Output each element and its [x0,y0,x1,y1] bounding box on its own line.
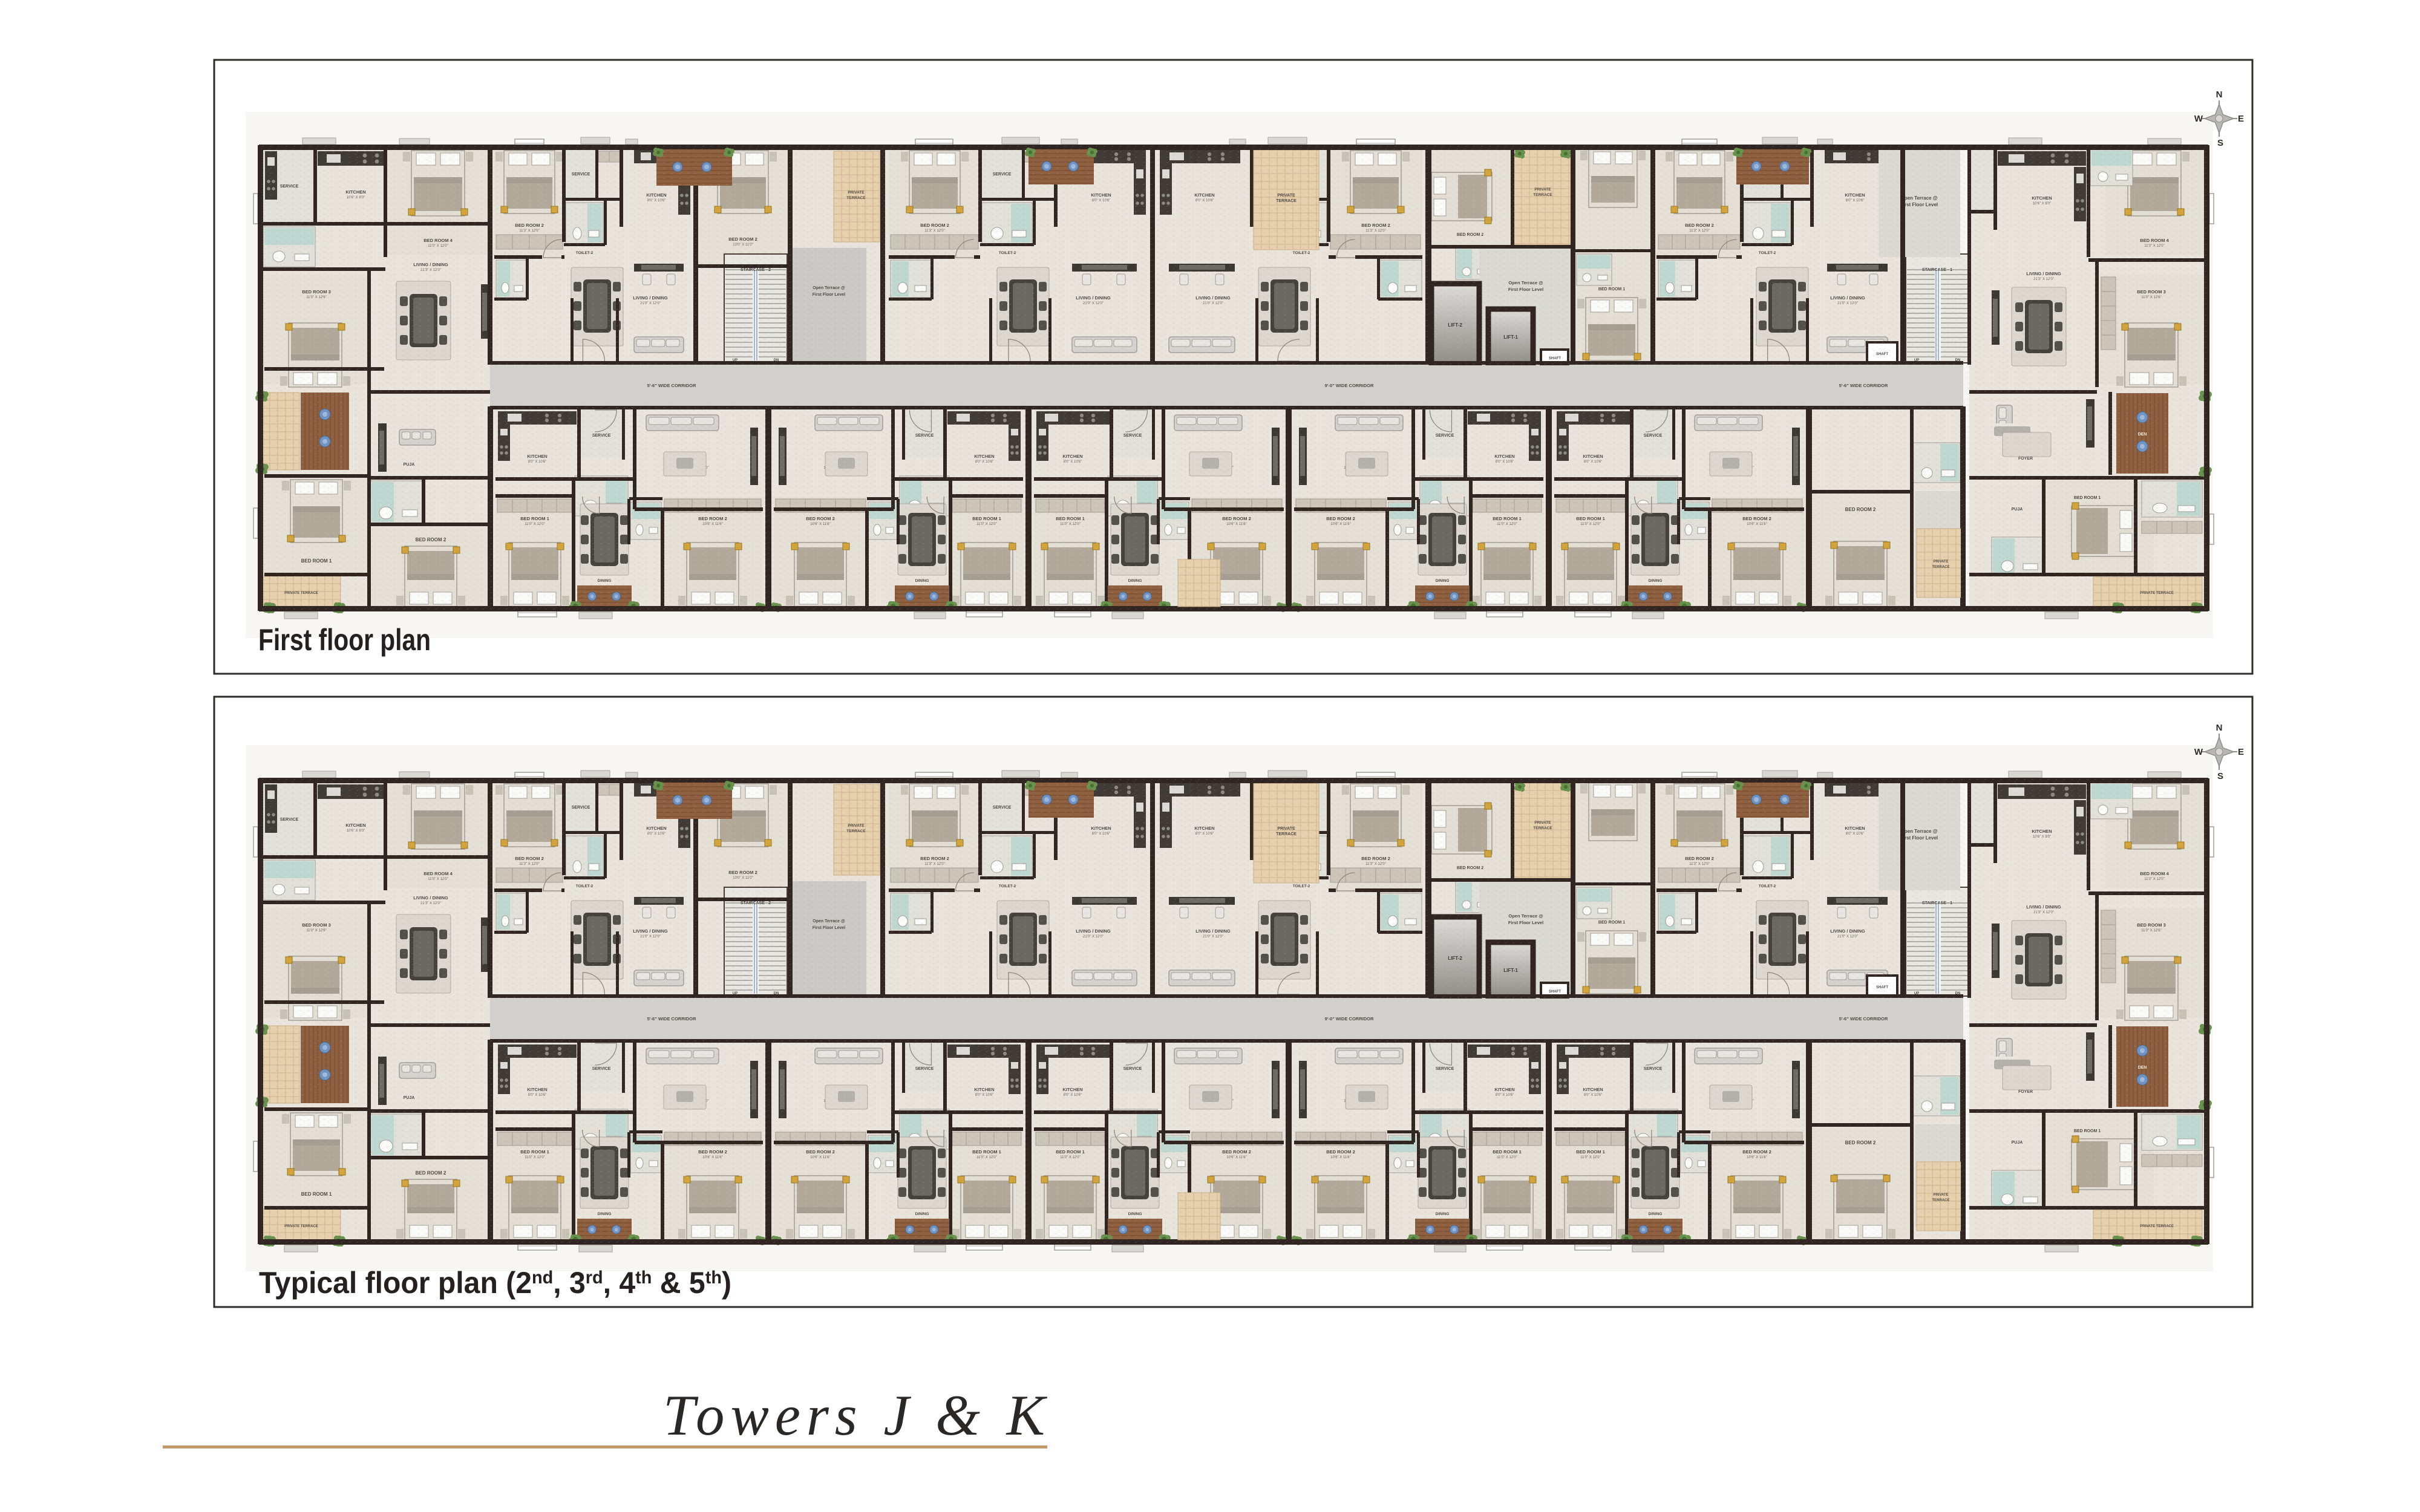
svg-text:S: S [2217,138,2223,148]
svg-text:Towers J & K: Towers J & K [663,1383,1048,1447]
svg-text:W: W [2194,114,2203,124]
svg-text:E: E [2238,114,2244,124]
svg-text:S: S [2217,771,2223,781]
svg-text:E: E [2238,747,2244,757]
svg-text:W: W [2194,747,2203,757]
svg-text:Typical floor plan (2nd, 3rd,: Typical floor plan (2nd, 3rd, 4th & 5th) [259,1266,731,1300]
svg-text:First floor plan: First floor plan [258,623,431,657]
svg-text:N: N [2216,723,2223,733]
svg-text:N: N [2216,90,2223,100]
